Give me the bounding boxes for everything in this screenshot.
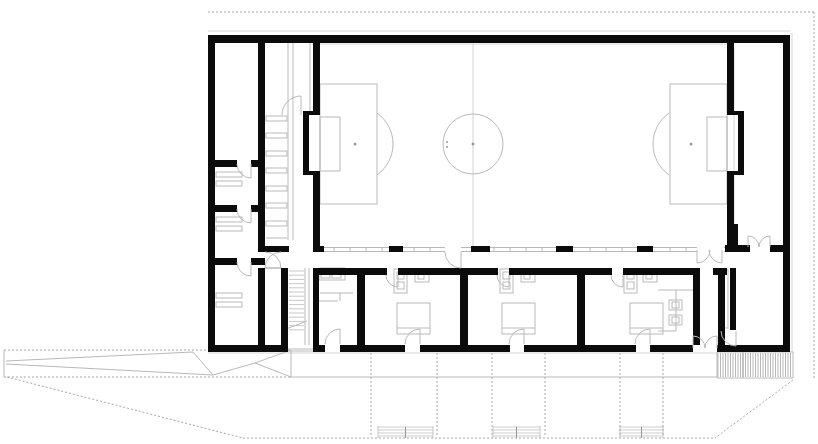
detail-line: [213, 363, 255, 375]
fixture-outline: [216, 293, 242, 298]
site-boundary-dashed: [7, 377, 243, 438]
door-swing: [697, 250, 710, 263]
site-boundary-dashed: [715, 380, 793, 438]
wall-segment: [577, 268, 585, 345]
exterior-stair-hatch: [718, 353, 791, 377]
wall-segment: [770, 245, 790, 252]
door-swing: [237, 209, 251, 223]
wall-segment: [732, 224, 738, 251]
wall-segment: [281, 268, 288, 345]
detail-line: [6, 364, 213, 375]
door-swing: [709, 250, 722, 263]
detail-line: [286, 321, 307, 329]
door-swing: [705, 336, 717, 348]
wall-segment: [693, 268, 700, 345]
wall-segment: [208, 345, 288, 352]
fixture-outline: [266, 133, 287, 138]
wall-segment: [357, 268, 365, 345]
wall-segment: [208, 35, 215, 348]
wall-segment: [623, 268, 700, 275]
door-swing: [445, 252, 461, 268]
door-swing: [325, 329, 340, 344]
wall-segment: [340, 345, 405, 352]
door-swing: [282, 96, 301, 115]
wall-segment: [738, 111, 744, 175]
fixture-outline: [216, 302, 242, 307]
wall-segment: [215, 160, 237, 167]
fixture-outline: [216, 217, 242, 222]
fixture-outline: [320, 117, 340, 171]
wall-segment: [303, 111, 309, 175]
wall-segment: [556, 246, 573, 252]
door-swing: [405, 329, 420, 344]
door-swing: [509, 329, 524, 344]
fixture-outline: [266, 221, 287, 226]
fixture-outline: [266, 186, 287, 191]
wall-segment: [215, 258, 237, 265]
wall-segment: [509, 268, 612, 275]
wall-segment: [783, 35, 790, 352]
fixture-outline: [627, 282, 634, 289]
wall-segment: [251, 160, 265, 167]
pitch-spot: [472, 143, 475, 146]
fixture-outline: [216, 226, 242, 231]
fixture-outline: [266, 168, 287, 173]
door-swing: [759, 236, 770, 247]
pitch-spot: [446, 146, 448, 148]
fixture-outline: [266, 116, 287, 121]
door-swing: [237, 262, 251, 276]
door-swing: [237, 164, 251, 178]
wall-segment: [258, 246, 289, 252]
pitch-spot: [446, 141, 448, 143]
pitch-spot: [690, 143, 693, 146]
wall-segment: [313, 171, 320, 247]
wall-segment: [637, 246, 653, 252]
penalty-arc: [653, 113, 669, 175]
penalty-arc: [377, 113, 393, 175]
wall-segment: [398, 268, 498, 275]
fixture-outline: [216, 181, 242, 186]
window-band-layer: [313, 248, 790, 252]
wall-segment: [717, 345, 790, 352]
wall-segment: [420, 345, 510, 352]
stairs-layer: [289, 271, 304, 330]
wall-segment: [460, 268, 468, 345]
wall-segment: [313, 268, 387, 275]
wall-segment: [258, 268, 265, 345]
thin-lines-layer: [4, 43, 793, 378]
site-works-layer: [4, 12, 814, 438]
fixture-outline: [502, 303, 535, 334]
wall-segment: [471, 246, 490, 252]
fixture-outline: [216, 172, 242, 177]
wall-segment: [258, 43, 265, 252]
detail-line: [193, 352, 213, 375]
wall-segment: [730, 268, 736, 330]
fixture-outline: [670, 84, 727, 204]
wall-segment: [389, 246, 403, 252]
fixture-outline: [320, 84, 377, 204]
wall-segment: [524, 345, 636, 352]
pitch-spot: [354, 143, 357, 146]
detail-line: [255, 363, 291, 377]
floor-plan-page: [0, 0, 818, 444]
fixture-outline: [266, 203, 287, 208]
pitch-markings-layer: [354, 113, 693, 175]
floor-plan-drawing: [0, 0, 818, 444]
wall-segment: [208, 35, 790, 43]
detail-line: [6, 352, 193, 361]
fixture-outline: [397, 303, 430, 334]
wall-segment: [313, 43, 320, 115]
wall-segment: [251, 205, 265, 212]
wall-segment: [727, 43, 734, 115]
wall-segment: [650, 345, 693, 352]
door-swing: [386, 275, 398, 287]
door-swing: [635, 329, 650, 344]
wall-segment: [313, 345, 325, 352]
fixture-outline: [707, 117, 727, 171]
wall-segment: [313, 246, 324, 252]
door-swing: [611, 275, 623, 287]
wall-segment: [251, 258, 265, 265]
fixture-outline: [266, 151, 287, 156]
wall-segment: [313, 268, 319, 345]
wall-segment: [215, 205, 237, 212]
